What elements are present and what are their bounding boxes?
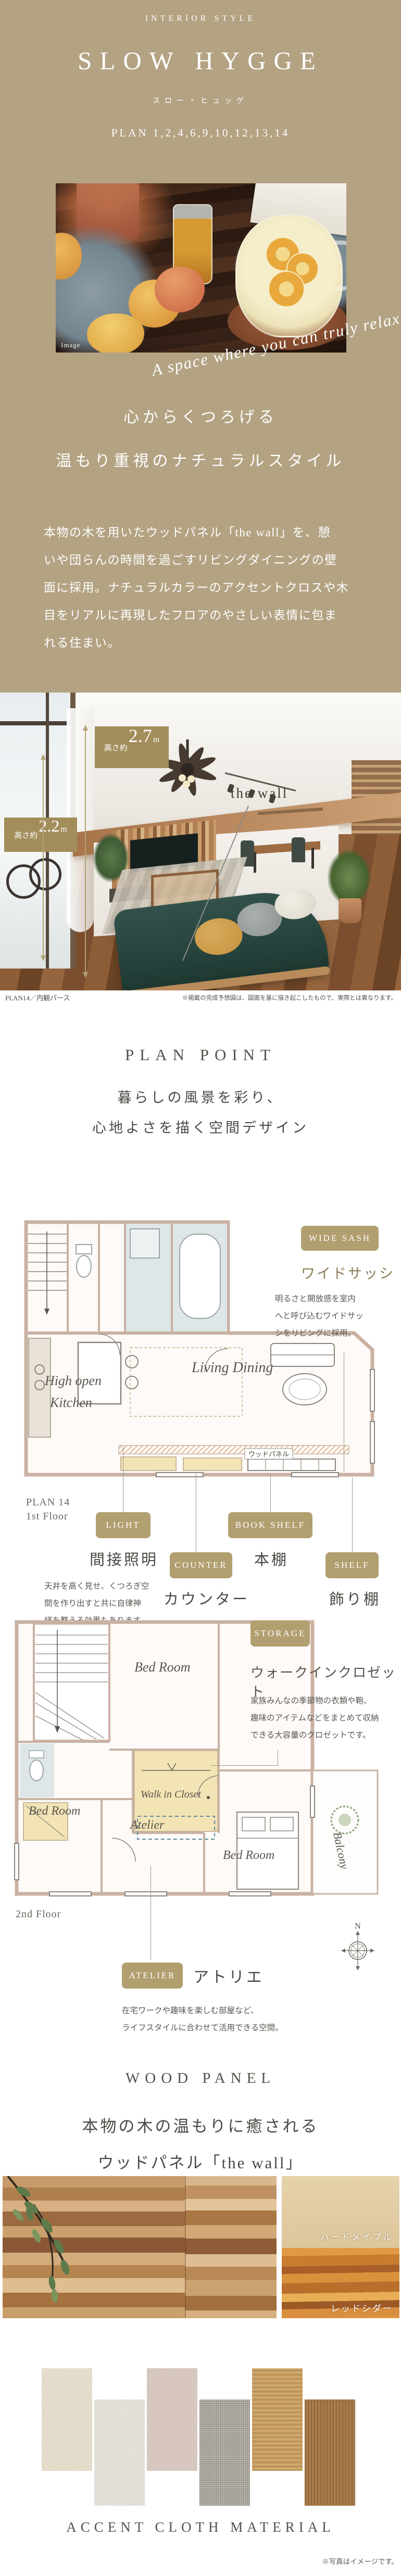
wood-panel-photo (3, 2176, 277, 2318)
hero-body-text: 本物の木を用いたウッドパネル「the wall」を、憩 いや団らんの時間を過ごす… (44, 519, 361, 657)
mug-handle (335, 241, 346, 291)
lemon (87, 313, 144, 353)
plan-point-sub1: 暮らしの風景を彩り、 (0, 1086, 401, 1107)
atelier-badge: ATELIER (122, 1963, 183, 1989)
cloth-swatch-4 (199, 2399, 250, 2506)
room-label-living-dining: Living Dining (191, 1360, 273, 1376)
measure-arrow-2-7m (85, 730, 86, 973)
room-label-bedroom-right: Bed Room (223, 1849, 274, 1862)
hard-maple-swatch: ハードメイプル (282, 2176, 399, 2248)
floor2-plan-label: 2nd Floor (16, 1907, 61, 1921)
photo-disclaimer-note: ※写真はイメージです。 (3, 2556, 398, 2566)
room-label-wic: Walk in Closet (141, 1789, 201, 1800)
svg-text:N: N (355, 1922, 361, 1931)
compass: N (341, 1920, 374, 1978)
brochure-page: INTERIOR STYLE SLOW HYGGE スロー・ヒュッゲ PLAN … (0, 0, 401, 2576)
cloth-swatch-1 (42, 2368, 92, 2471)
eyebrow: INTERIOR STYLE (0, 14, 401, 23)
measure-arrow-2-2m (43, 759, 44, 956)
bicycle-wheel (29, 858, 61, 890)
badge-prefix: 高さ約 (104, 742, 128, 753)
hard-maple-label: ハードメイプル (320, 2230, 393, 2243)
accent-cloth-heading: ACCENT CLOTH MATERIAL (0, 2519, 401, 2535)
page-title: SLOW HYGGE (0, 46, 401, 76)
storage-badge: STORAGE (250, 1620, 310, 1647)
shelf-title: 飾り棚 (329, 1587, 381, 1609)
height-badge-2-2m: 高さ約2.2m (4, 818, 77, 852)
light-badge: LIGHT (96, 1512, 151, 1538)
image-tag: Image (61, 341, 80, 349)
glass-mug (235, 215, 343, 337)
plant (327, 849, 371, 906)
lemon (155, 267, 205, 312)
interior-render-photo: 高さ約2.7m 高さ約2.2m the wall (0, 693, 401, 990)
wood-panel-heading: WOOD PANEL (0, 2070, 401, 2087)
wide-sash-title: ワイドサッシ (301, 1262, 395, 1283)
wood-panel-tag: ウッドパネル (248, 1450, 289, 1458)
dining-chair (292, 837, 305, 862)
height-badge-2-7m: 高さ約2.7m (95, 726, 169, 768)
room-label-bedroom-left: Bed Room (29, 1804, 80, 1818)
render-disclaimer: ※掲載の完成予想図は、図面を基に描き起こしたもので、実際とは異なります。 (135, 994, 397, 1002)
counter-badge: COUNTER (170, 1552, 232, 1578)
wood-panel-sub1: 本物の木の温もりに癒される (0, 2113, 401, 2137)
plant-branch (3, 2176, 122, 2311)
badge-value: 2.2 (39, 818, 59, 834)
wide-sash-leader-line (344, 1353, 344, 1472)
room-label-kitchen-2: Kitchen (49, 1395, 92, 1410)
room-label-bedroom-top: Bed Room (134, 1660, 191, 1675)
plan-point-heading: PLAN POINT (0, 1046, 401, 1064)
storage-leader-line-v (278, 1751, 278, 1766)
cloth-swatch-3 (147, 2368, 197, 2471)
cloth-swatch-2 (94, 2399, 145, 2506)
title-kana: スロー・ヒュッゲ (0, 95, 401, 106)
counter-leader-line (196, 1474, 196, 1552)
plant-pot (339, 898, 361, 923)
room-label-atelier: Atelier (129, 1818, 165, 1832)
room-label-kitchen-1: High open (44, 1373, 102, 1388)
the-wall-label: the wall (231, 785, 288, 801)
red-cedar-swatch: レッドシダー (282, 2248, 399, 2318)
hero-photo: Image (56, 183, 346, 353)
atelier-leader-line (151, 1866, 151, 1959)
storage-leader-line (210, 1765, 278, 1766)
floor1-plan-label: PLAN 14 1st Floor (26, 1496, 70, 1524)
bookshelf-badge: BOOK SHELF (228, 1512, 312, 1538)
hero-heading-line1: 心からくつろげる (0, 404, 401, 427)
shelf-badge: SHELF (325, 1552, 379, 1578)
wood-panel-sub2: ウッドパネル「the wall」 (0, 2150, 401, 2173)
hero-heading-line2: 温もり重視のナチュラルスタイル (0, 448, 401, 471)
counter-title: カウンター (164, 1587, 249, 1609)
cloth-swatch-5 (252, 2368, 303, 2471)
floor2-plan-drawing: Bed Room Walk in Closet Bed Room Atelier… (0, 1614, 401, 1901)
floor1-plan-drawing: ウッドパネル High open Kitchen Living Dining (0, 1213, 401, 1479)
storage-desc: 家族みんなの季節物の衣類や鞄、 趣味のアイテムなどをまとめて収納 できる大容量の… (250, 1692, 399, 1744)
bookshelf-title: 本棚 (254, 1548, 289, 1569)
atelier-title: アトリエ (193, 1964, 264, 1987)
plan-numbers: PLAN 1,2,4,6,9,10,12,13,14 (0, 127, 401, 140)
cloth-swatch-6 (305, 2399, 355, 2506)
shelf-leader-line (352, 1478, 353, 1552)
badge-unit: m (153, 735, 159, 745)
badge-unit: m (60, 825, 67, 834)
badge-prefix: 高さ約 (14, 830, 37, 840)
bookshelf-leader-line (270, 1476, 271, 1512)
light-title: 間接照明 (90, 1548, 158, 1569)
wide-sash-badge: WIDE SASH (301, 1226, 379, 1251)
badge-value: 2.7 (129, 726, 152, 745)
red-cedar-label: レッドシダー (331, 2301, 393, 2314)
light-leader-line (123, 1447, 123, 1512)
wide-sash-desc: 明るさと開放感を室内 へと呼び込むワイドサッ シをリビングに採用。 (275, 1290, 397, 1342)
plan-point-sub2: 心地よさを描く空間デザイン (0, 1116, 401, 1137)
atelier-desc: 在宅ワークや趣味を楽しむ部屋など、 ライフスタイルに合わせて活用できる空間。 (122, 2002, 341, 2037)
